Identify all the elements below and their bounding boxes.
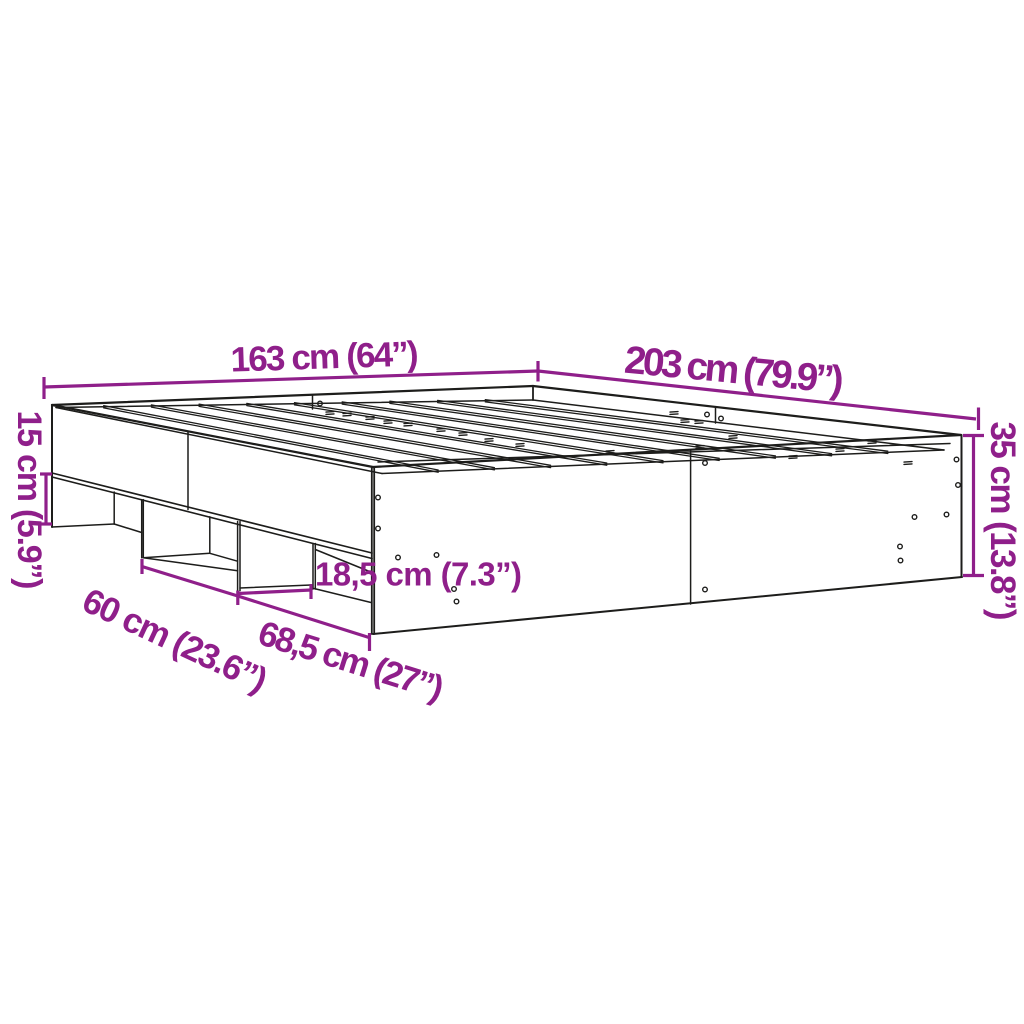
svg-text:15 cm (5.9”): 15 cm (5.9”) [10,411,48,590]
svg-text:18,5 cm (7.3”): 18,5 cm (7.3”) [315,556,522,593]
svg-text:163 cm (64”): 163 cm (64”) [230,334,419,379]
svg-text:35 cm (13.8”): 35 cm (13.8”) [983,422,1022,621]
